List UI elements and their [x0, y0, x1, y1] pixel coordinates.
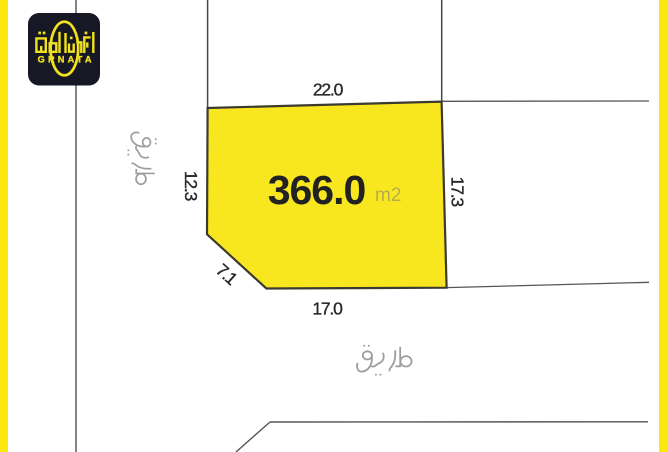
svg-text:m2: m2	[375, 185, 401, 206]
svg-text:7.1: 7.1	[212, 260, 241, 289]
svg-text:17.0: 17.0	[312, 299, 343, 319]
svg-text:22.0: 22.0	[313, 80, 344, 100]
svg-text:366.0: 366.0	[268, 167, 366, 213]
svg-text:17.3: 17.3	[448, 177, 468, 207]
svg-text:GRNATA: GRNATA	[38, 54, 95, 64]
svg-text:12.3: 12.3	[181, 171, 201, 201]
